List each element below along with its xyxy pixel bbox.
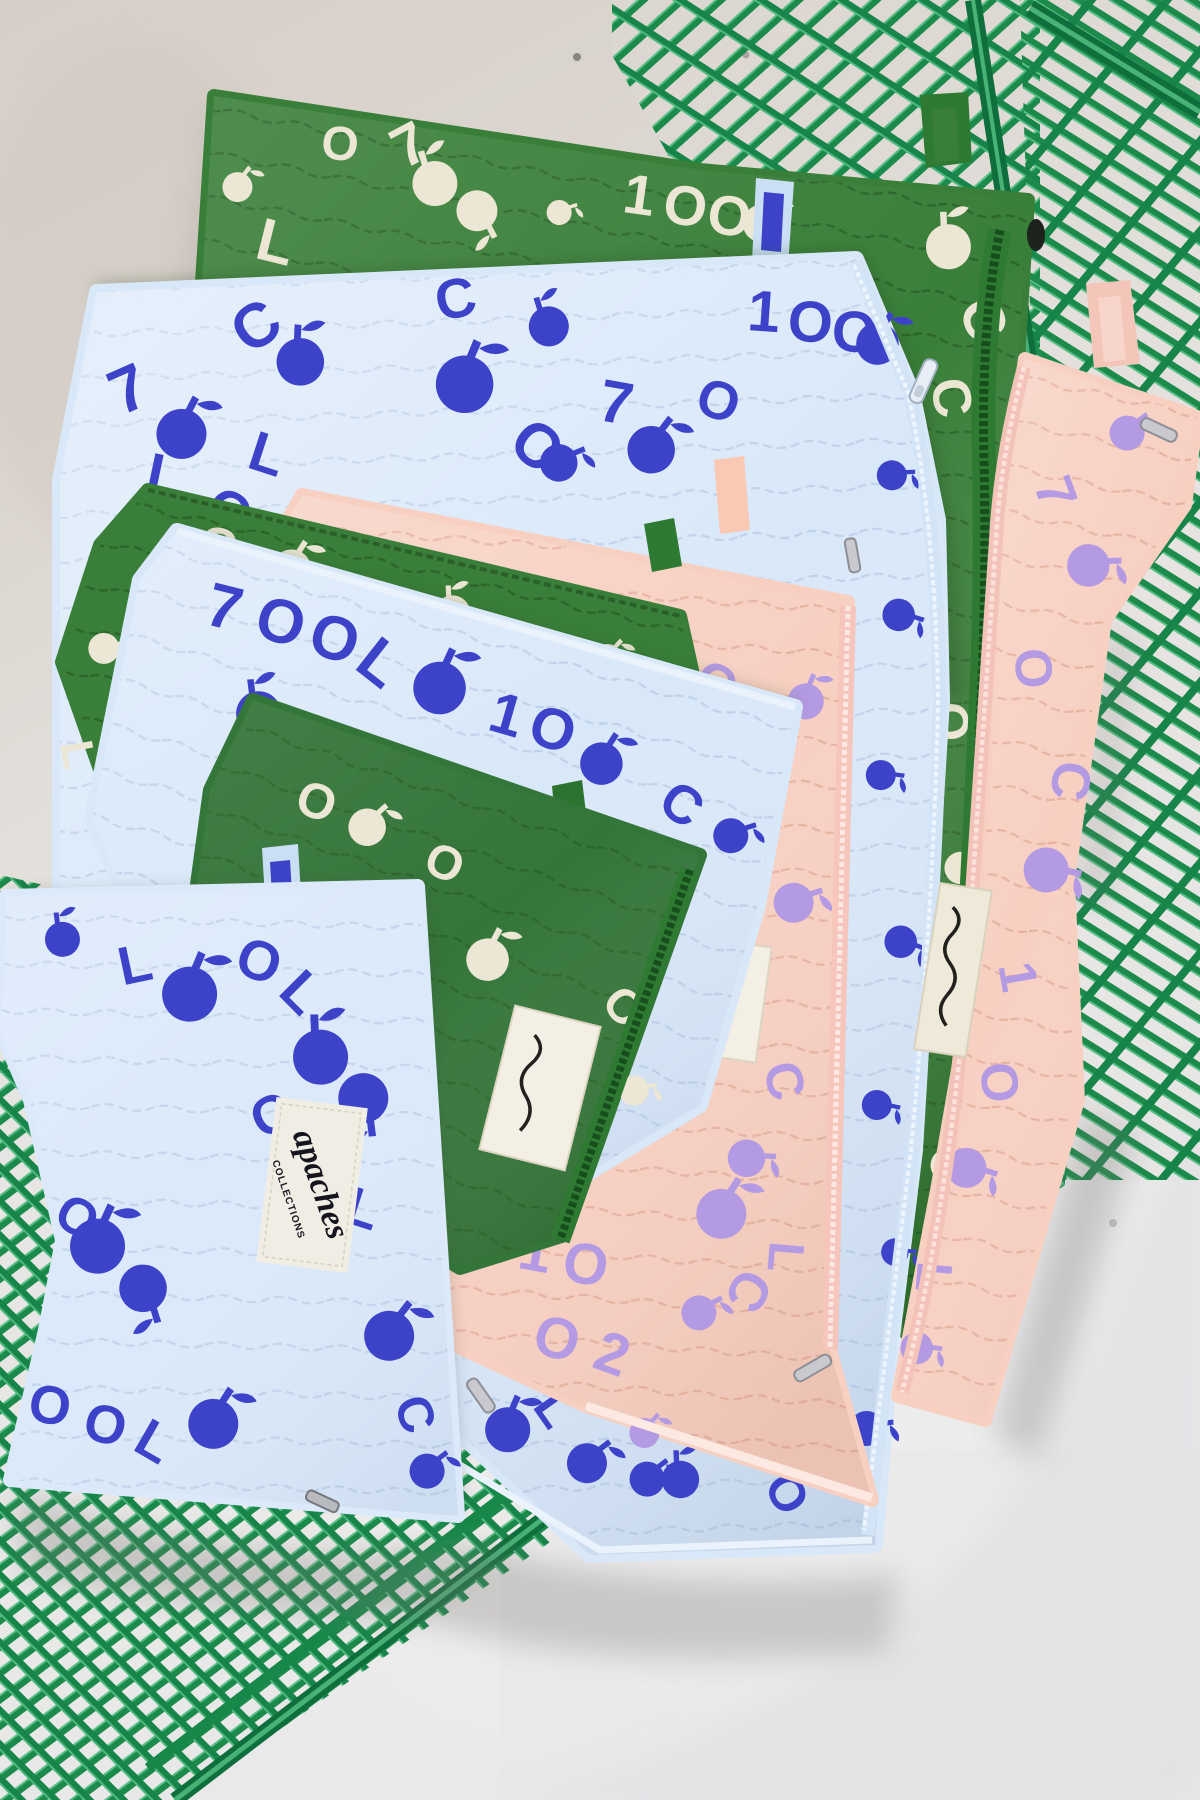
svg-text:O: O [319,116,362,173]
svg-text:O: O [968,1060,1029,1105]
svg-text:O: O [786,288,836,356]
svg-text:O: O [660,171,712,239]
svg-text:L: L [756,1239,814,1274]
svg-text:O: O [1002,646,1063,691]
svg-text:1: 1 [746,278,783,345]
